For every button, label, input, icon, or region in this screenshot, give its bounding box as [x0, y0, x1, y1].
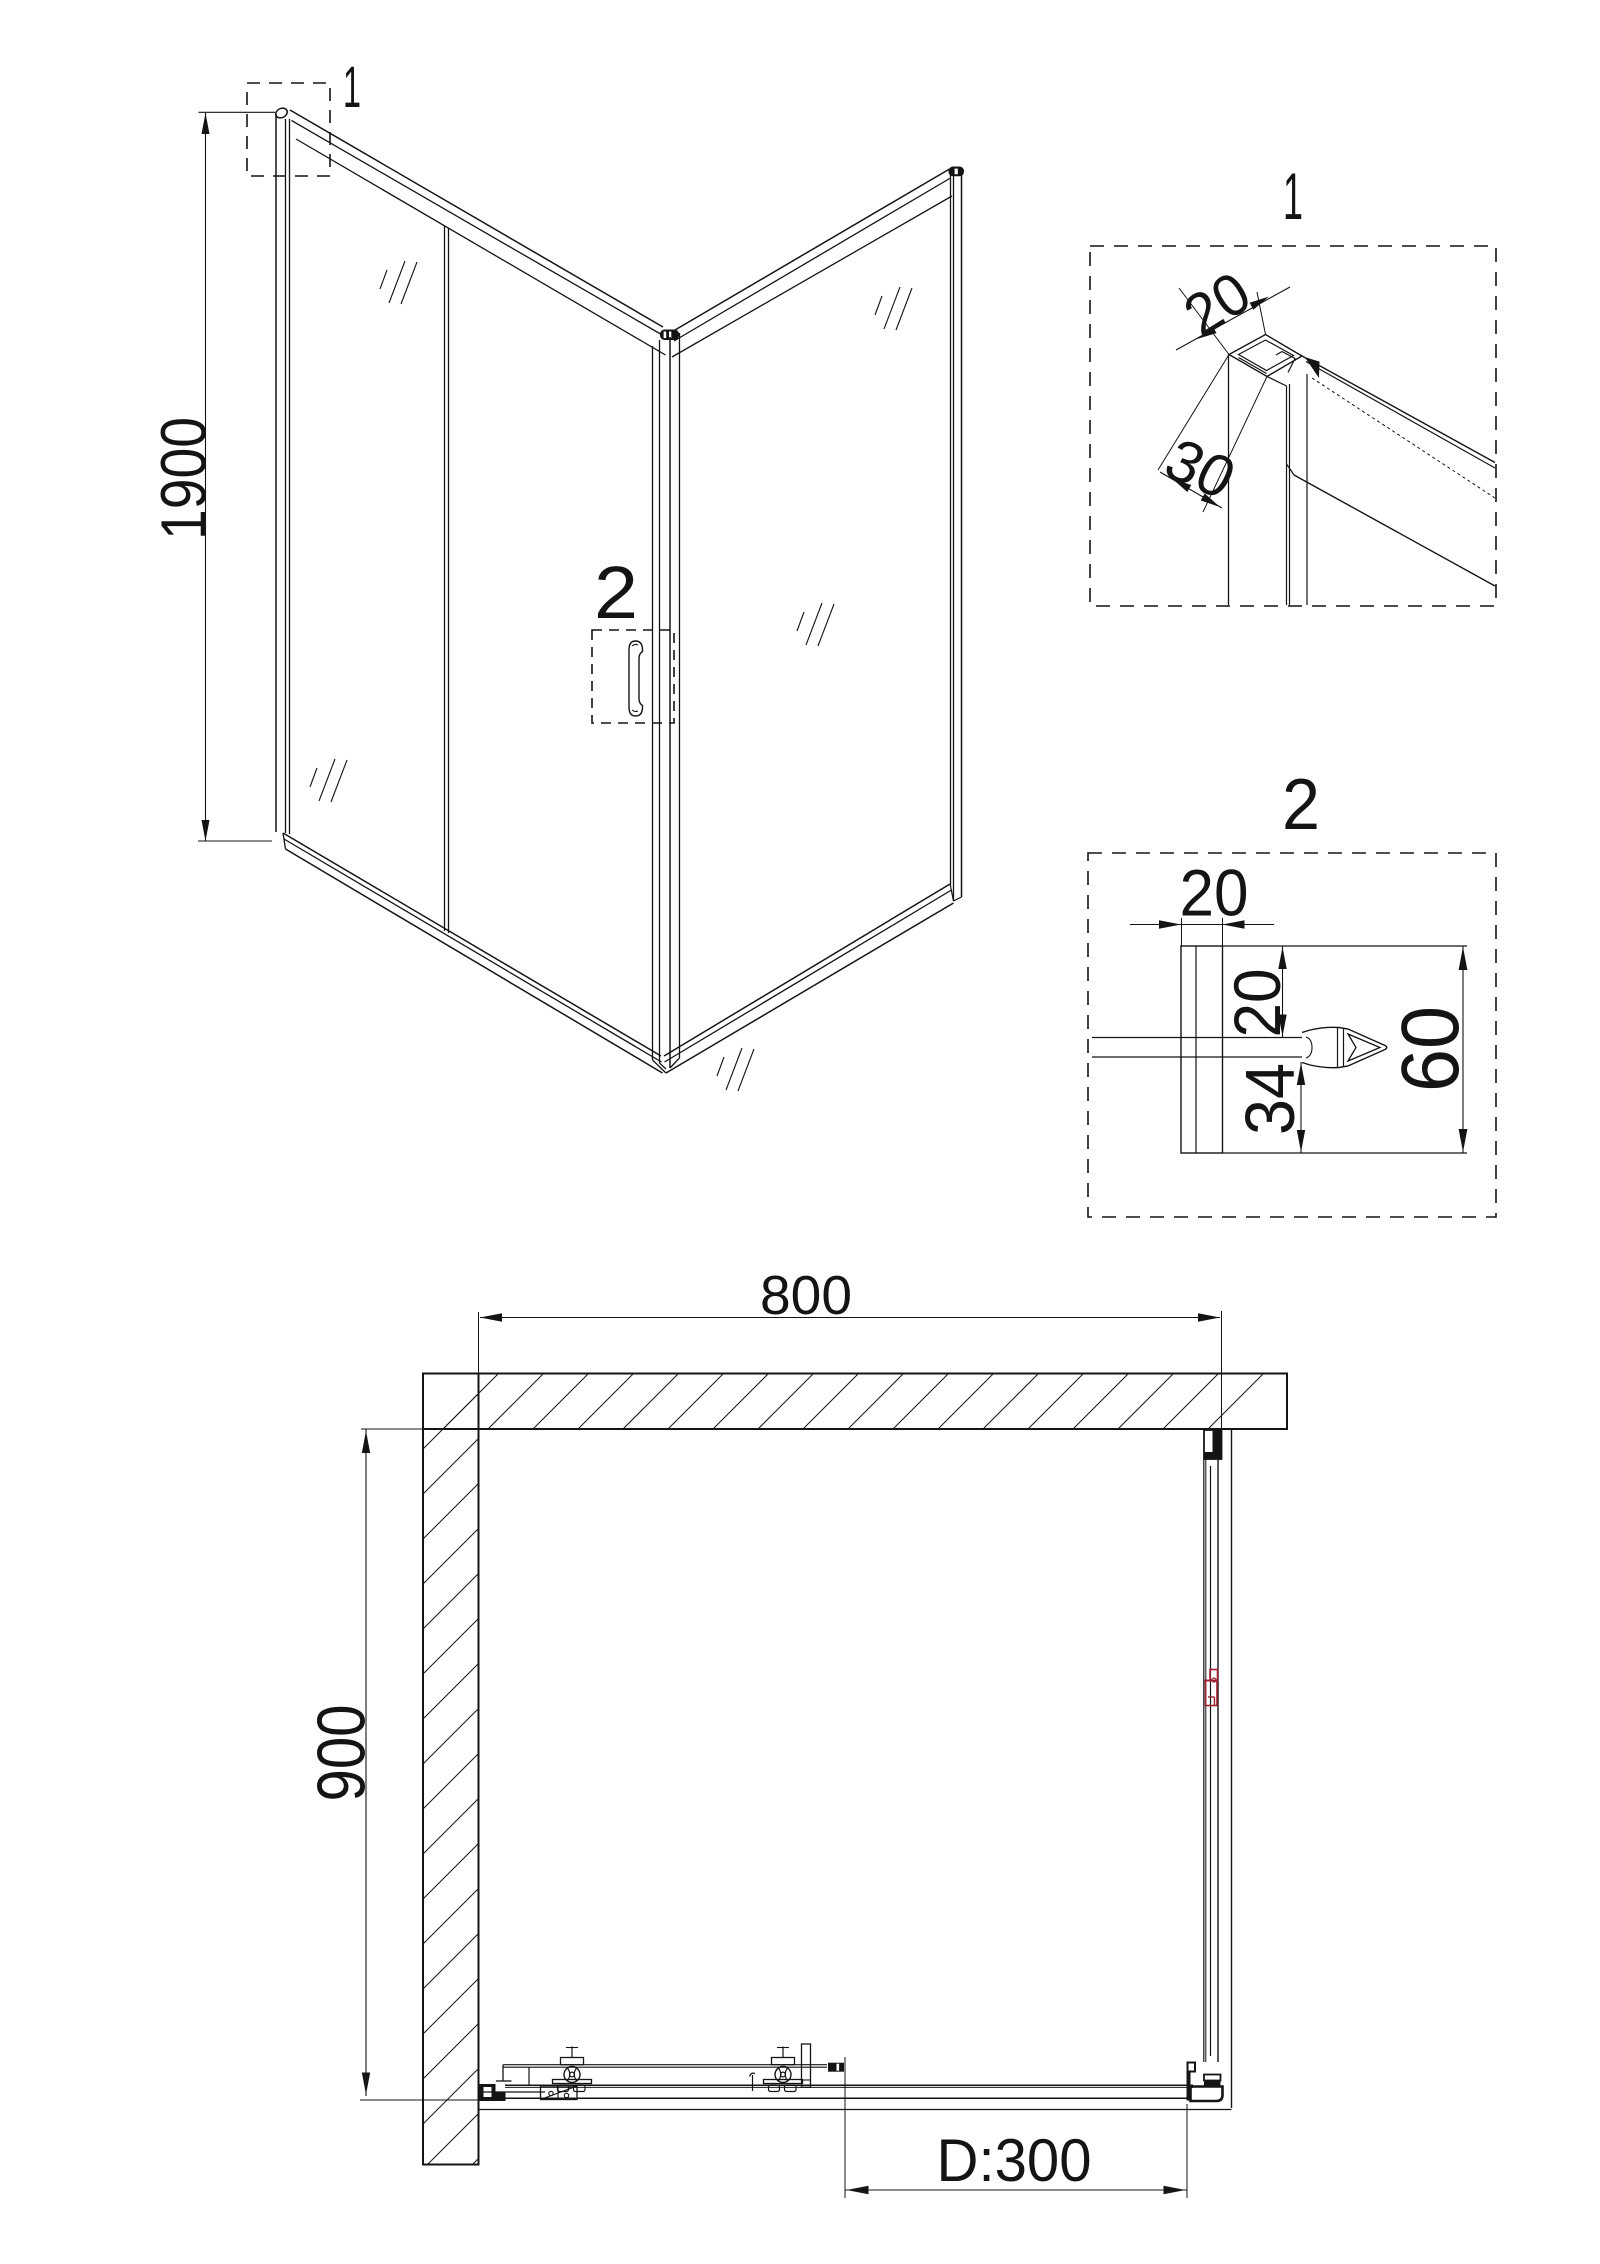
- svg-text:900: 900: [304, 1705, 380, 1802]
- svg-text:800: 800: [760, 1264, 852, 1326]
- svg-text:1900: 1900: [148, 417, 220, 540]
- svg-text:20: 20: [1180, 856, 1249, 930]
- svg-text:D:300: D:300: [937, 2127, 1092, 2194]
- svg-text:1: 1: [343, 55, 361, 120]
- svg-text:20: 20: [1220, 969, 1294, 1038]
- svg-text:2: 2: [594, 551, 638, 634]
- svg-text:2: 2: [1282, 765, 1320, 845]
- svg-text:60: 60: [1385, 1006, 1476, 1092]
- svg-text:1: 1: [1283, 159, 1303, 233]
- svg-text:34: 34: [1231, 1063, 1309, 1135]
